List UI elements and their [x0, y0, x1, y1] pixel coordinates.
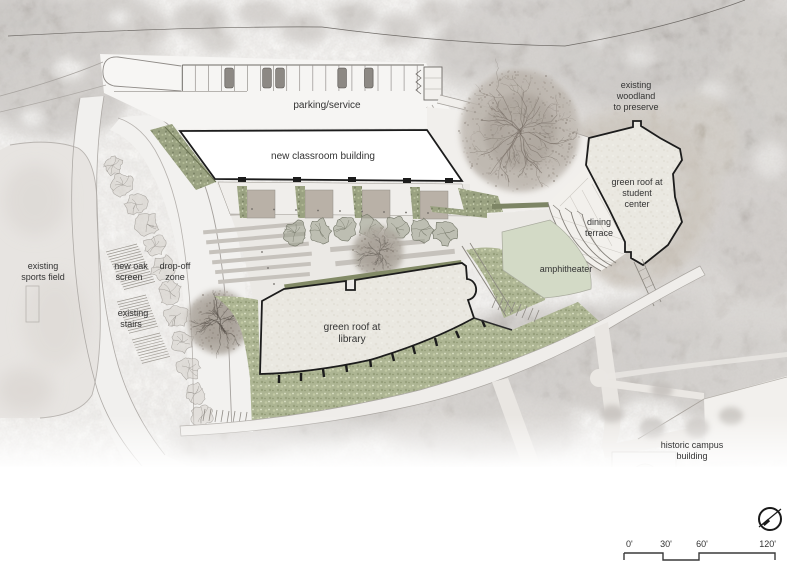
svg-text:parking/service: parking/service — [293, 100, 361, 111]
svg-text:student: student — [622, 188, 652, 198]
svg-text:green roof at: green roof at — [324, 322, 381, 333]
svg-text:terrace: terrace — [585, 228, 613, 238]
svg-text:drop-off: drop-off — [160, 261, 191, 271]
svg-text:new classroom building: new classroom building — [271, 151, 375, 162]
svg-text:amphitheater: amphitheater — [540, 264, 593, 274]
svg-text:existing: existing — [28, 261, 59, 271]
svg-text:screen: screen — [115, 272, 142, 282]
svg-text:building: building — [676, 451, 707, 461]
svg-text:new oak: new oak — [114, 261, 148, 271]
svg-text:existing: existing — [118, 308, 149, 318]
svg-text:stairs: stairs — [120, 319, 142, 329]
svg-text:60': 60' — [696, 539, 708, 549]
svg-text:to preserve: to preserve — [613, 102, 658, 112]
svg-text:center: center — [624, 199, 649, 209]
svg-text:sports field: sports field — [21, 272, 65, 282]
svg-text:historic campus: historic campus — [661, 440, 724, 450]
svg-text:green roof at: green roof at — [611, 177, 663, 187]
svg-text:dining: dining — [587, 217, 611, 227]
svg-text:0': 0' — [626, 539, 633, 549]
svg-text:woodland: woodland — [616, 91, 656, 101]
svg-text:30': 30' — [660, 539, 672, 549]
svg-text:existing: existing — [621, 80, 652, 90]
svg-text:library: library — [338, 334, 365, 345]
svg-text:zone: zone — [165, 272, 185, 282]
svg-text:120': 120' — [759, 539, 776, 549]
